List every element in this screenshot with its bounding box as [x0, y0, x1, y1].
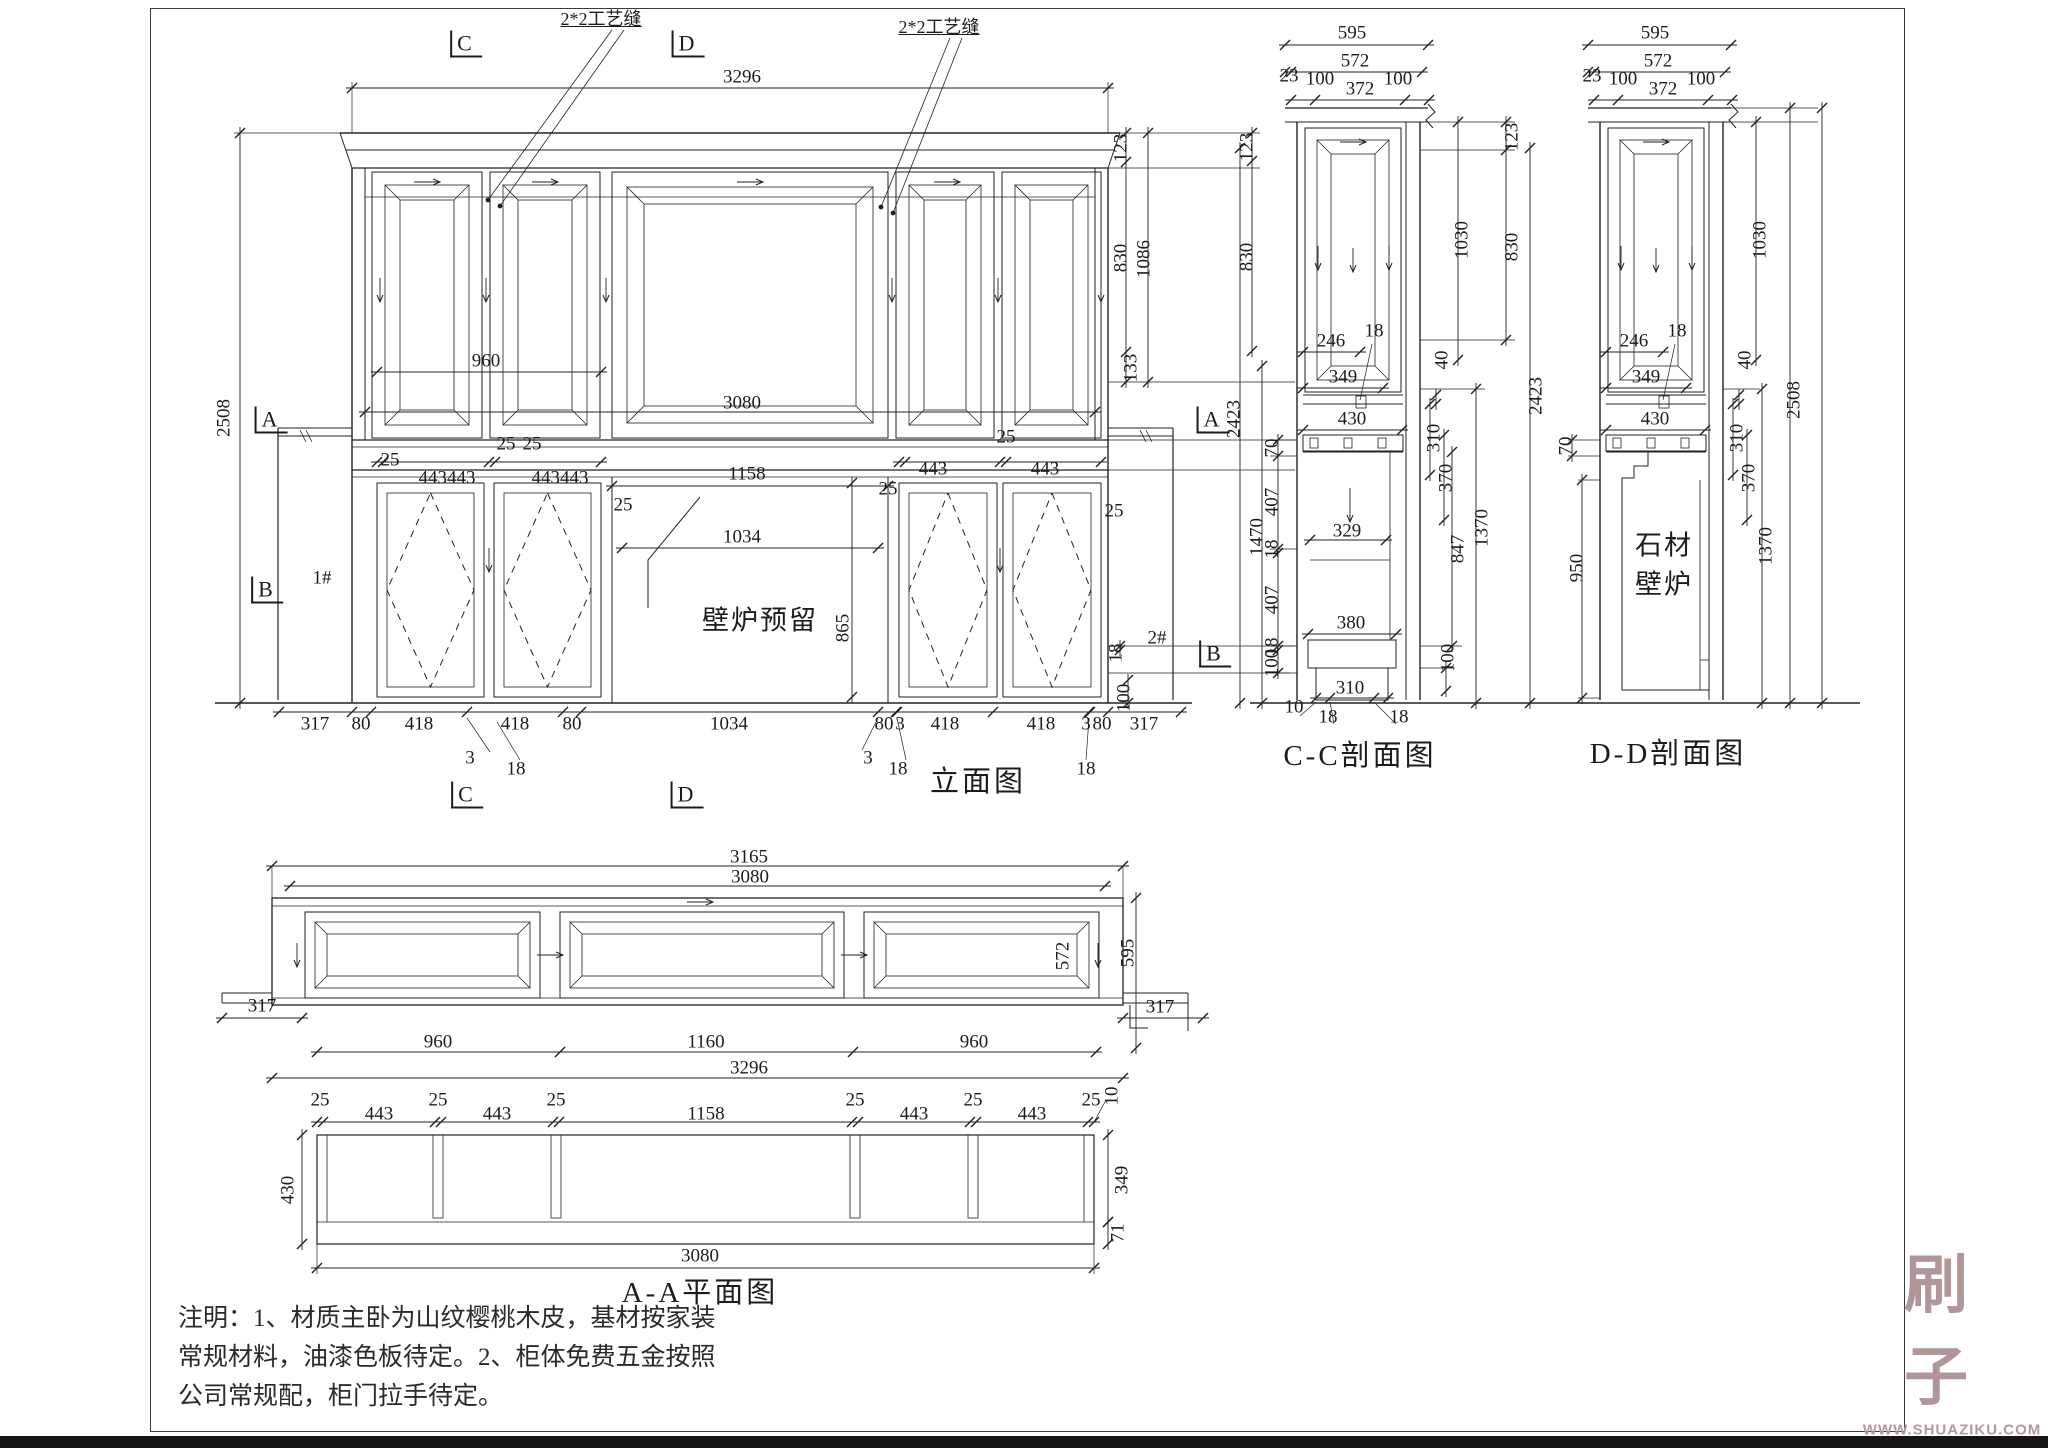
dimension-label: 950 — [1568, 554, 1587, 583]
elevation-title: 立面图 — [930, 758, 1026, 800]
dimension-label: 443 — [483, 1105, 512, 1124]
section-marker: D — [672, 31, 705, 58]
dimension-label: 349 — [1632, 368, 1661, 387]
dimension-label: 595 — [1338, 24, 1367, 43]
dimension-label: 830 — [1503, 233, 1522, 262]
dimension-label: 246 — [1317, 332, 1346, 351]
dimension-label: 572 — [1054, 942, 1073, 971]
dimension-label: 1370 — [1757, 527, 1776, 565]
dimension-label: 80 — [563, 715, 582, 734]
dimension-label: 123 — [1112, 134, 1131, 163]
dimension-label: 3080 — [723, 394, 761, 413]
section-cc-title: C-C剖面图 — [1283, 732, 1436, 774]
dimension-label: 407 — [1263, 586, 1282, 615]
annotation-text: 壁炉预留 — [702, 608, 818, 635]
dimension-label: 3080 — [731, 868, 769, 887]
dimension-label: 960 — [472, 352, 501, 371]
section-marker: B — [1199, 641, 1231, 668]
dimension-label: 25 — [846, 1091, 865, 1110]
section-marker: C — [451, 782, 483, 809]
dimension-label: 1# — [313, 569, 332, 588]
dimension-label: 25 — [311, 1091, 330, 1110]
dimension-label: 100 — [1263, 649, 1282, 678]
dimension-label: 830 — [1112, 244, 1131, 273]
dimension-label: 18 — [1077, 760, 1096, 779]
dimension-label: 10 — [1285, 698, 1304, 717]
dimension-label: 25 — [381, 451, 400, 470]
dimension-label: 2508 — [215, 399, 234, 437]
dimension-label: 100 — [1439, 644, 1458, 673]
dimension-label: 18 — [507, 760, 526, 779]
section-marker: B — [251, 577, 283, 604]
dimension-label: 123 — [1238, 133, 1257, 162]
dimension-label: 18 — [1107, 644, 1126, 663]
dimension-label: 1034 — [723, 528, 761, 547]
dimension-label: 100 — [1115, 684, 1134, 713]
dimension-label: 3165 — [730, 848, 768, 867]
dimension-label: 70 — [1263, 439, 1282, 458]
dimension-label: 18 — [889, 760, 908, 779]
dimension-label: 310 — [1425, 424, 1444, 453]
section-marker: C — [450, 31, 482, 58]
dimension-label: 830 — [1238, 243, 1257, 272]
dimension-label: 3 — [1081, 715, 1091, 734]
dimension-label: 18 — [1668, 322, 1687, 341]
dimension-label: 349 — [1113, 1166, 1132, 1195]
dimension-label: 40 — [1433, 351, 1452, 370]
dimension-label: 1370 — [1473, 509, 1492, 547]
dimension-label: 80 — [875, 715, 894, 734]
dimension-label: 960 — [424, 1033, 453, 1052]
dimension-label: 18 — [1365, 322, 1384, 341]
dimension-label: 1470 — [1248, 518, 1267, 556]
dimension-label: 3296 — [723, 68, 761, 87]
dimension-label: 10 — [1103, 1087, 1122, 1106]
dimension-label: 18 — [1390, 708, 1409, 727]
dimension-label: 1086 — [1135, 240, 1154, 278]
dimension-label: 100 — [1687, 70, 1716, 89]
dimension-label: 100 — [1306, 70, 1335, 89]
dimension-label: 349 — [1329, 368, 1358, 387]
dimension-label: 960 — [960, 1033, 989, 1052]
dimension-label: 23 — [1583, 67, 1602, 86]
dimension-label: 18 — [1319, 708, 1338, 727]
dimension-label: 430 — [1338, 410, 1367, 429]
dimension-label: 317 — [1130, 715, 1159, 734]
dimension-label: 317 — [301, 715, 330, 734]
dimension-label: 25 — [1105, 502, 1124, 521]
dimension-label: 310 — [1728, 424, 1747, 453]
dimension-label: 443443 — [532, 469, 589, 488]
drawing-sheet: 2*2工艺缝2*2工艺缝CD32962508AB1#96030802525254… — [0, 0, 2048, 1448]
dimension-label: 317 — [248, 997, 277, 1016]
dimension-label: 443443 — [419, 469, 476, 488]
dimension-label: 123 — [1503, 123, 1522, 152]
dimension-label: 3 — [863, 749, 873, 768]
section-marker: D — [671, 782, 704, 809]
dimension-label: 572 — [1644, 52, 1673, 71]
dimension-label: 25 — [429, 1091, 448, 1110]
dimension-label: 372 — [1649, 80, 1678, 99]
dimension-label: 310 — [1336, 679, 1365, 698]
dimension-label: 3080 — [681, 1247, 719, 1266]
dimension-label: 370 — [1437, 464, 1456, 493]
dimension-label: 3296 — [730, 1059, 768, 1078]
dimension-label: 370 — [1740, 464, 1759, 493]
dimension-label: 25 — [547, 1091, 566, 1110]
dimension-label: 418 — [405, 715, 434, 734]
dimension-label: 3 — [465, 749, 475, 768]
dimension-label: 372 — [1346, 80, 1375, 99]
dimension-label: 443 — [1018, 1105, 1047, 1124]
dimension-label: 2423 — [1225, 400, 1244, 438]
section-marker: A — [255, 407, 288, 434]
dimension-label: 595 — [1641, 24, 1670, 43]
dimension-label: 1034 — [710, 715, 748, 734]
dimension-label: 3 — [895, 715, 905, 734]
dimension-label: 2423 — [1527, 377, 1546, 415]
bottom-bar — [0, 1436, 2048, 1448]
dimension-label: 430 — [1641, 410, 1670, 429]
notes-line-1: 注明：1、材质主卧为山纹樱桃木皮，基材按家装 — [178, 1300, 716, 1339]
notes-line-2: 常规材料，油漆色板待定。2、柜体免费五金按照 — [178, 1339, 716, 1378]
dimension-label: 25 — [523, 435, 542, 454]
dimension-label: 847 — [1449, 535, 1468, 564]
dimension-label: 1160 — [687, 1033, 724, 1052]
dimension-label: 380 — [1337, 614, 1366, 633]
dimension-label: 317 — [1146, 998, 1175, 1017]
dimension-label: 443 — [919, 460, 948, 479]
notes-block: 注明：1、材质主卧为山纹樱桃木皮，基材按家装 常规材料，油漆色板待定。2、柜体免… — [178, 1300, 716, 1416]
dimension-label: 80 — [1093, 715, 1112, 734]
dimension-label: 1158 — [728, 465, 765, 484]
dimension-label: 418 — [931, 715, 960, 734]
callout-label: 2*2工艺缝 — [561, 10, 642, 28]
notes-line-3: 公司常规配，柜门拉手待定。 — [178, 1378, 716, 1417]
watermark-logo: 刷子库 — [1904, 1234, 2000, 1448]
dimension-label: 1158 — [687, 1105, 724, 1124]
dimension-label: 100 — [1609, 70, 1638, 89]
dimension-label: 25 — [879, 480, 898, 499]
dimension-label: 443 — [365, 1105, 394, 1124]
dimension-label: 100 — [1384, 70, 1413, 89]
dimension-label: 71 — [1109, 1224, 1128, 1243]
dimension-label: 246 — [1620, 332, 1649, 351]
dimension-label: 2# — [1148, 629, 1167, 648]
dimension-label: 1030 — [1751, 221, 1770, 259]
dimension-label: 418 — [501, 715, 530, 734]
dimension-label: 430 — [279, 1176, 298, 1205]
dimension-label: 2508 — [1785, 381, 1804, 419]
callout-label: 2*2工艺缝 — [899, 18, 980, 36]
dimension-label: 443 — [1031, 460, 1060, 479]
dimension-label: 329 — [1333, 522, 1362, 541]
dimension-label: 70 — [1557, 437, 1576, 456]
dimension-label: 1030 — [1453, 221, 1472, 259]
dimension-label: 572 — [1341, 52, 1370, 71]
dimension-label: 25 — [497, 435, 516, 454]
section-dd-title: D-D剖面图 — [1590, 730, 1747, 772]
dimension-label: 40 — [1736, 351, 1755, 370]
dimension-label: 25 — [964, 1091, 983, 1110]
dimension-label: 25 — [614, 496, 633, 515]
dimension-label: 407 — [1263, 488, 1282, 517]
dimension-label: 133 — [1122, 354, 1141, 383]
dimension-label: 595 — [1119, 939, 1138, 968]
dimension-label: 865 — [834, 614, 853, 643]
dimension-label: 418 — [1027, 715, 1056, 734]
dimension-label: 25 — [997, 428, 1016, 447]
dimension-label: 25 — [1082, 1091, 1101, 1110]
dimension-label: 80 — [352, 715, 371, 734]
dimension-label: 23 — [1280, 67, 1299, 86]
annotation-text: 石材 — [1635, 533, 1693, 560]
annotation-text: 壁炉 — [1635, 572, 1693, 599]
dimension-label: 443 — [900, 1105, 929, 1124]
